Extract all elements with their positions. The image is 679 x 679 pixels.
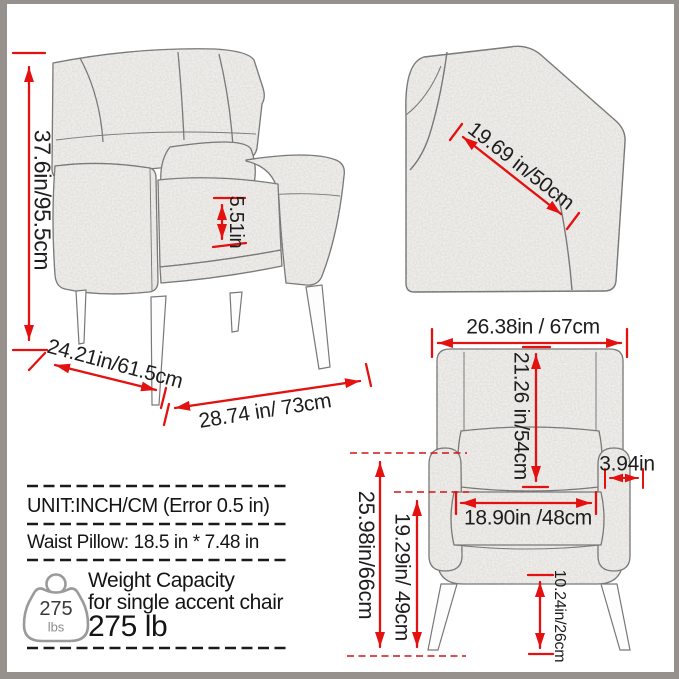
perspective-chair-sketch [52, 49, 344, 294]
dim-label-overall-height: 37.6in/95.5cm [31, 130, 54, 271]
dim-label-top-width: 26.38in / 67cm [466, 317, 600, 338]
weight-icon-value: 275 [39, 599, 72, 619]
weight-capacity-value: 275 lb [88, 612, 167, 642]
dim-label-leg-height: 10.24in/26cm [551, 570, 567, 662]
unit-note: UNIT:INCH/CM (Error 0.5 in) [27, 496, 270, 516]
waist-pillow-note: Waist Pillow: 18.5 in * 7.48 in [27, 533, 259, 552]
frame-border-top [0, 0, 679, 4]
dim-label-arm-to-floor: 25.98in/66cm [355, 491, 377, 620]
dim-label-back-height: 21.26 in/54cm [511, 352, 532, 480]
frame-border-right [674, 0, 679, 679]
dim-label-seat-to-floor: 19.29in/ 49cm [392, 513, 413, 641]
product-dimension-diagram: { "product": "accent chair dimension dia… [0, 0, 679, 679]
weight-icon-unit: lbs [48, 621, 65, 634]
weight-capacity-title: Weight Capacity [88, 570, 235, 591]
frame-border-left [0, 0, 7, 679]
dim-label-seat-width: 18.90in /48cm [464, 508, 592, 529]
front-view-legs [428, 584, 630, 650]
dim-arrow-leg-height [528, 575, 553, 654]
dim-label-armrest-height: 5.51in [226, 196, 246, 249]
perspective-chair-legs [76, 285, 330, 405]
dim-label-arm-width: 3.94in [599, 454, 654, 475]
frame-border-bottom [0, 672, 679, 679]
